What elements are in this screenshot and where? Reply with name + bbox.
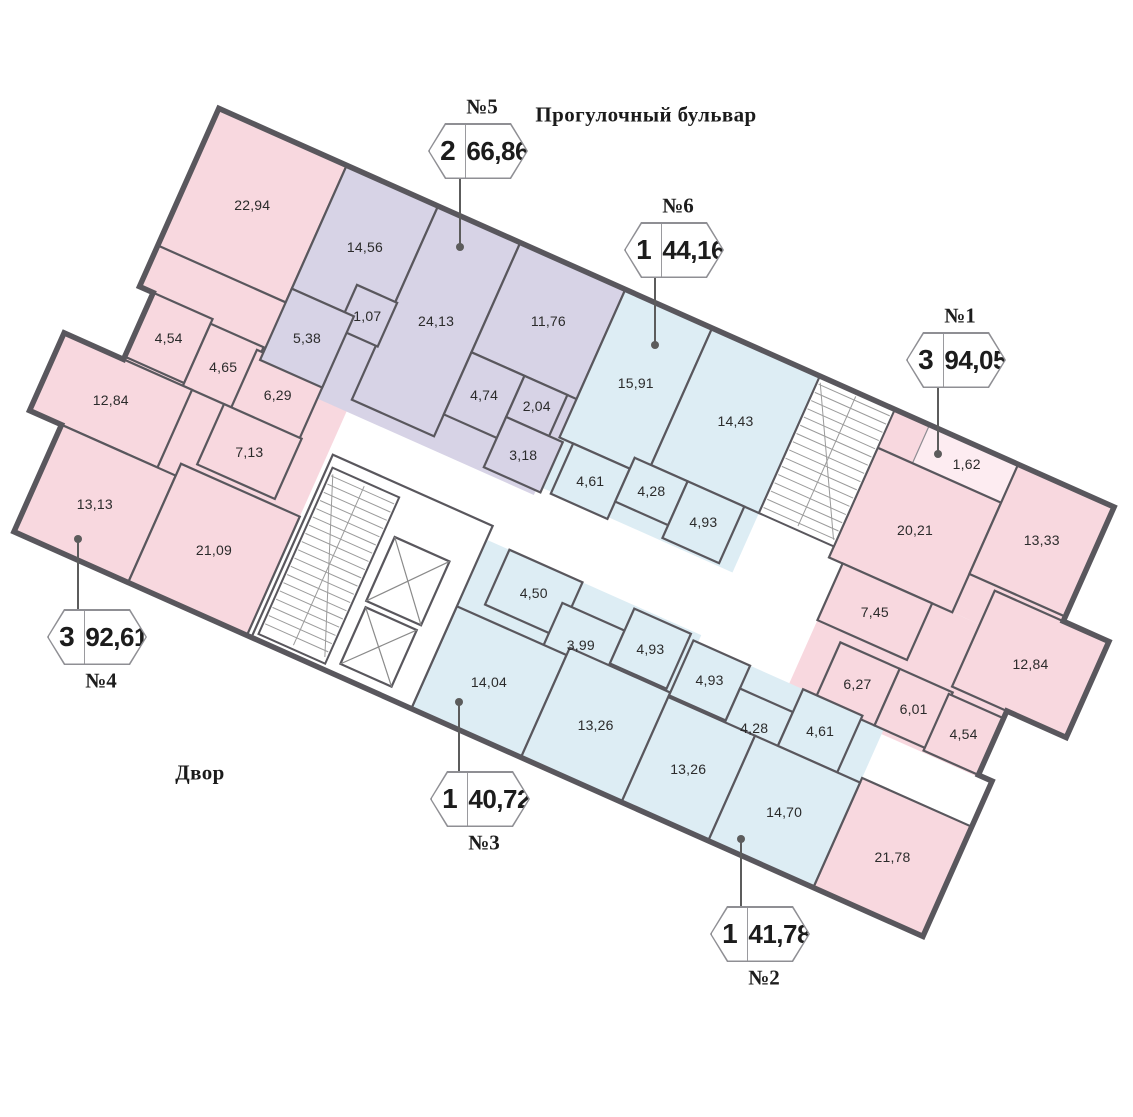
building-geometry: [0, 0, 1133, 1117]
street-label: Прогулочный бульвар: [535, 103, 756, 128]
courtyard-label: Двор: [175, 761, 224, 786]
